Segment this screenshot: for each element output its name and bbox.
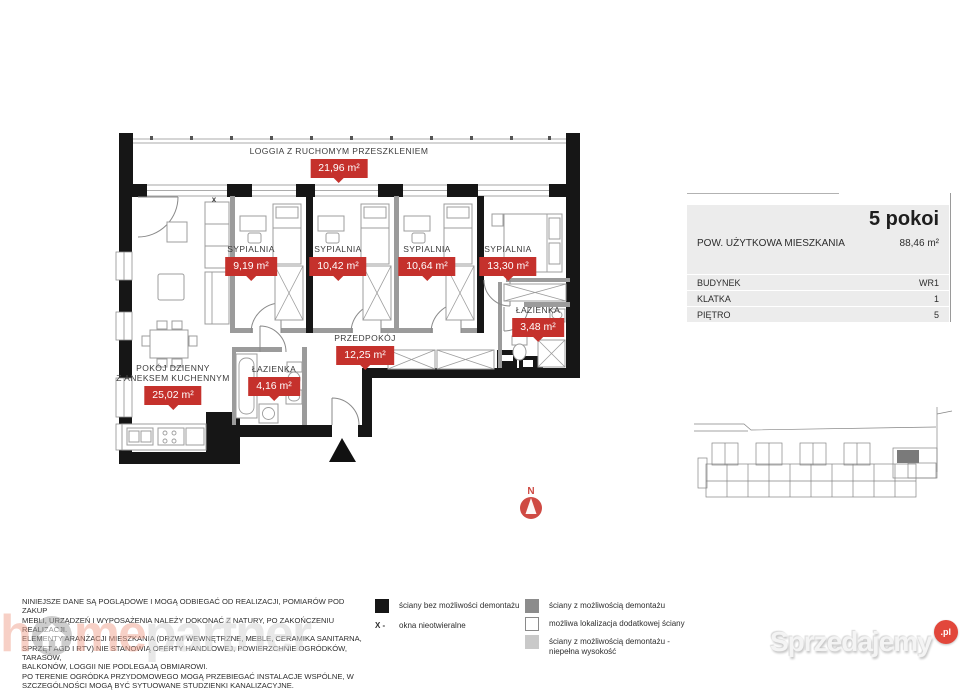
loggia-glazing [133, 136, 566, 143]
row-value: WR1 [919, 278, 939, 288]
room-label-sypialnia-3: SYPIALNIA 10,64 m² [398, 244, 455, 276]
usable-area-row: POW. UŻYTKOWA MIESZKANIA 88,46 m² [697, 238, 939, 249]
legend-label: ściany z możliwością demontażu [549, 599, 665, 611]
legend-swatch-gray-wall [525, 599, 539, 613]
floor-plan-drawing: x N [0, 0, 960, 679]
room-area-badge: 4,16 m² [248, 377, 300, 396]
legend-item-fixed-windows: X - okna nieotwieralne [375, 619, 466, 631]
room-name: ŁAZIENKA [512, 305, 564, 315]
apartment-type-title: 5 pokoi [869, 208, 939, 231]
site-plan [694, 407, 952, 497]
room-name: SYPIALNIA [309, 244, 366, 254]
row-klatka: KLATKA 1 [687, 290, 949, 306]
window-marker-x: x [212, 195, 217, 204]
furniture-hallway [388, 350, 494, 369]
room-label-lazienka-1: ŁAZIENKA 3,48 m² [512, 305, 564, 337]
disclaimer-text: NINIEJSZE DANE SĄ POGLĄDOWE I MOGĄ ODBIE… [22, 597, 370, 690]
legend-label: okna nieotwieralne [399, 619, 466, 631]
row-label: BUDYNEK [697, 278, 741, 288]
north-compass-icon: N [520, 486, 542, 519]
row-value: 5 [934, 310, 939, 320]
legend-x-symbol: X - [375, 619, 399, 630]
legend-item-optional-wall: możliwa lokalizacja dodatkowej ściany [525, 617, 685, 631]
room-name: SYPIALNIA [398, 244, 455, 254]
attribute-rows: BUDYNEK WR1 KLATKA 1 PIĘTRO 5 [687, 274, 949, 322]
room-name: SYPIALNIA [479, 244, 536, 254]
room-label-lazienka-2: ŁAZIENKA 4,16 m² [248, 364, 300, 396]
room-name: PRZEDPOKÓJ [334, 333, 396, 343]
legend-swatch-outline [525, 617, 539, 631]
panel-right-rule [950, 193, 951, 322]
row-value: 1 [934, 294, 939, 304]
room-area-badge: 13,30 m² [479, 257, 536, 276]
room-name: LOGGIA Z RUCHOMYM PRZESZKLENIEM [250, 146, 429, 156]
room-label-pokoj-dzienny: POKÓJ DZIENNY Z ANEKSEM KUCHENNYM 25,02 … [116, 363, 229, 405]
room-label-przedpokoj: PRZEDPOKÓJ 12,25 m² [334, 333, 396, 365]
room-area-badge: 25,02 m² [144, 386, 201, 405]
room-area-badge: 3,48 m² [512, 318, 564, 337]
row-label: PIĘTRO [697, 310, 731, 320]
legend-item-demountable-walls: ściany z możliwością demontażu [525, 599, 665, 613]
room-label-sypialnia-4: SYPIALNIA 13,30 m² [479, 244, 536, 276]
room-label-sypialnia-2: SYPIALNIA 10,42 m² [309, 244, 366, 276]
legend-label: ściany z możliwością demontażu - niepełn… [549, 635, 670, 657]
usable-area-label: POW. UŻYTKOWA MIESZKANIA [697, 238, 845, 249]
row-label: KLATKA [697, 294, 731, 304]
room-area-badge: 9,19 m² [225, 257, 277, 276]
legend-swatch-light-gray-wall [525, 635, 539, 649]
panel-top-rule [687, 193, 839, 194]
svg-text:N: N [527, 486, 534, 497]
room-name: POKÓJ DZIENNY Z ANEKSEM KUCHENNYM [116, 363, 229, 383]
room-area-badge: 10,42 m² [309, 257, 366, 276]
room-label-sypialnia-1: SYPIALNIA 9,19 m² [225, 244, 277, 276]
usable-area-value: 88,46 m² [900, 238, 939, 249]
room-area-badge: 10,64 m² [398, 257, 455, 276]
room-name: ŁAZIENKA [248, 364, 300, 374]
row-budynek: BUDYNEK WR1 [687, 274, 949, 290]
legend-label: ściany bez możliwości demontażu [399, 599, 520, 611]
info-panel: 5 pokoi POW. UŻYTKOWA MIESZKANIA 88,46 m… [687, 205, 949, 322]
room-label-loggia: LOGGIA Z RUCHOMYM PRZESZKLENIEM 21,96 m² [250, 146, 429, 178]
room-area-badge: 12,25 m² [336, 346, 393, 365]
row-pietro: PIĘTRO 5 [687, 306, 949, 322]
entrance-arrow-icon [329, 438, 356, 462]
facade-windows [133, 185, 566, 196]
room-area-badge: 21,96 m² [310, 159, 367, 178]
room-name: SYPIALNIA [225, 244, 277, 254]
legend-swatch-black-wall [375, 599, 389, 613]
legend-item-solid-walls: ściany bez możliwości demontażu [375, 599, 520, 613]
legend-item-half-height-walls: ściany z możliwością demontażu - niepełn… [525, 635, 670, 657]
legend-label: możliwa lokalizacja dodatkowej ściany [549, 617, 685, 629]
